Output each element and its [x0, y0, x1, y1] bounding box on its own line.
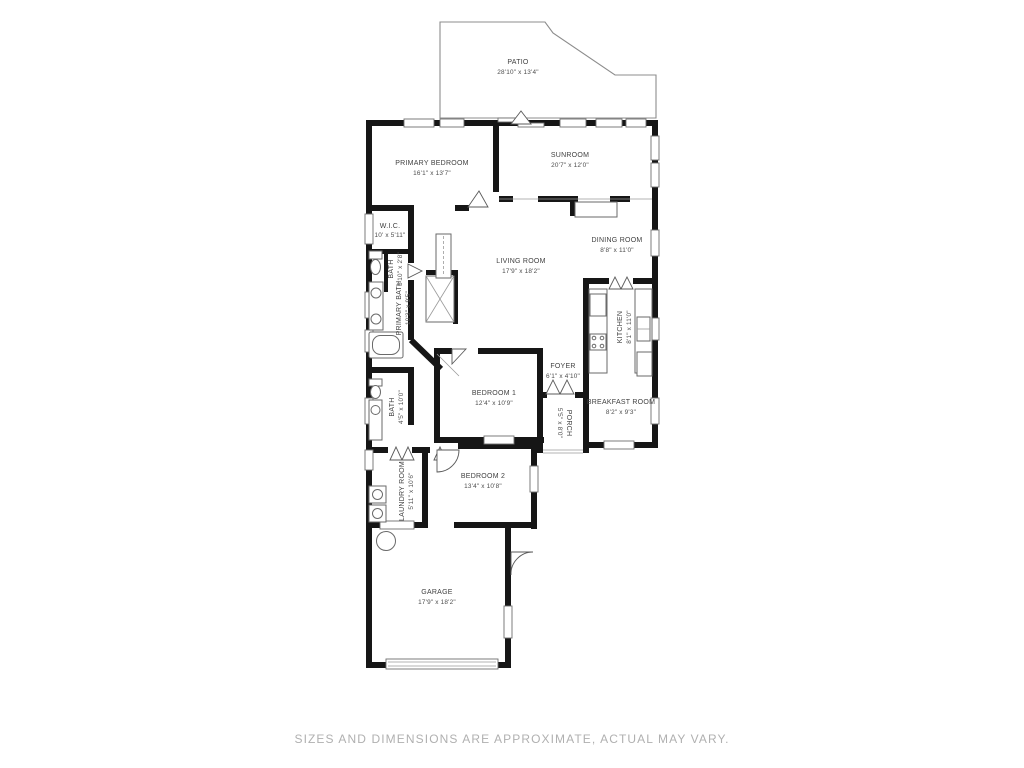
cabinet — [575, 202, 617, 217]
svg-text:8'8" x 11'0": 8'8" x 11'0" — [600, 247, 633, 254]
svg-text:FOYER: FOYER — [550, 363, 575, 370]
toilet-icon — [371, 386, 381, 399]
room-label-bedroom-1: BEDROOM 1 12'4" x 10'9" — [472, 390, 516, 407]
svg-text:BATH: BATH — [389, 397, 396, 416]
sink-icon — [371, 288, 381, 298]
water-heater-icon — [377, 532, 396, 551]
sink-icon — [371, 406, 380, 415]
disclaimer-text: SIZES AND DIMENSIONS ARE APPROXIMATE, AC… — [0, 732, 1024, 746]
svg-text:BEDROOM 1: BEDROOM 1 — [472, 390, 516, 397]
svg-text:20'7" x 12'0": 20'7" x 12'0" — [551, 162, 589, 169]
room-label-patio: PATIO 28'10" x 13'4" — [497, 59, 538, 76]
svg-text:6'1" x 4'10": 6'1" x 4'10" — [546, 373, 580, 380]
svg-text:W.I.C.: W.I.C. — [380, 223, 401, 230]
svg-text:BATH: BATH — [388, 259, 395, 278]
svg-text:17'9" x 18'2": 17'9" x 18'2" — [502, 268, 540, 275]
svg-text:28'10" x 13'4": 28'10" x 13'4" — [497, 69, 538, 76]
refrigerator-icon — [590, 294, 606, 316]
room-label-wic: W.I.C. 10' x 5'11" — [375, 223, 406, 239]
room-label-primary-bedroom: PRIMARY BEDROOM 16'1" x 13'7" — [395, 160, 469, 177]
svg-text:8'2" x 9'3": 8'2" x 9'3" — [606, 409, 636, 416]
room-label-sunroom: SUNROOM 20'7" x 12'0" — [551, 152, 589, 169]
pantry-cabinet — [637, 352, 652, 376]
svg-text:LAUNDRY ROOM: LAUNDRY ROOM — [399, 461, 406, 521]
svg-text:GARAGE: GARAGE — [421, 589, 453, 596]
svg-text:13'4" x 10'8": 13'4" x 10'8" — [464, 483, 502, 490]
svg-text:BREAKFAST ROOM: BREAKFAST ROOM — [587, 399, 655, 406]
svg-text:SUNROOM: SUNROOM — [551, 152, 589, 159]
svg-text:17'9" x 18'2": 17'9" x 18'2" — [418, 599, 456, 606]
svg-text:16'1" x 13'7": 16'1" x 13'7" — [413, 170, 451, 177]
svg-text:KITCHEN: KITCHEN — [617, 311, 624, 343]
svg-text:12'4" x 10'9": 12'4" x 10'9" — [475, 400, 513, 407]
room-label-laundry-room: LAUNDRY ROOM 5'11" x 10'6" — [399, 461, 415, 521]
svg-text:PORCH: PORCH — [565, 410, 572, 437]
floor-plan-drawing: PATIO 28'10" x 13'4" PRIMARY BEDROOM 16'… — [0, 0, 1024, 768]
room-label-living-room: LIVING ROOM 17'9" x 18'2" — [496, 258, 545, 275]
room-label-bedroom-2: BEDROOM 2 13'4" x 10'8" — [461, 473, 505, 490]
toilet-icon — [371, 260, 381, 275]
room-label-garage: GARAGE 17'9" x 18'2" — [418, 589, 456, 606]
svg-text:LIVING ROOM: LIVING ROOM — [496, 258, 545, 265]
closet-x — [426, 276, 454, 322]
svg-text:BEDROOM 2: BEDROOM 2 — [461, 473, 505, 480]
patio-outline — [440, 22, 656, 118]
room-label-kitchen: KITCHEN 8'1" x 11'0" — [617, 310, 633, 343]
svg-text:5'11" x 10'6": 5'11" x 10'6" — [408, 472, 415, 509]
svg-text:4'5" x 10'0": 4'5" x 10'0" — [398, 390, 405, 424]
svg-text:5'5" x 8'0": 5'5" x 8'0" — [556, 408, 563, 438]
svg-text:DINING ROOM: DINING ROOM — [592, 237, 643, 244]
room-label-porch: PORCH 5'5" x 8'0" — [556, 408, 572, 438]
toilet-tank — [369, 251, 382, 259]
svg-text:PRIMARY BEDROOM: PRIMARY BEDROOM — [395, 160, 469, 167]
room-label-breakfast-room: BREAKFAST ROOM 8'2" x 9'3" — [587, 399, 655, 416]
svg-text:10'3" x 9'5": 10'3" x 9'5" — [405, 291, 412, 325]
svg-text:PRIMARY BATH: PRIMARY BATH — [396, 281, 403, 336]
room-label-bath-2: BATH 4'5" x 10'0" — [389, 390, 405, 424]
sink-icon — [371, 314, 381, 324]
svg-text:8'1" x 11'0": 8'1" x 11'0" — [626, 310, 633, 343]
room-label-dining-room: DINING ROOM 8'8" x 11'0" — [592, 237, 643, 254]
svg-text:10' x 5'11": 10' x 5'11" — [375, 232, 406, 239]
garage-door — [386, 659, 498, 669]
toilet-tank — [369, 379, 382, 386]
floor-plan-page: PATIO 28'10" x 13'4" PRIMARY BEDROOM 16'… — [0, 0, 1024, 768]
svg-text:PATIO: PATIO — [507, 59, 529, 66]
room-label-foyer: FOYER 6'1" x 4'10" — [546, 363, 580, 380]
